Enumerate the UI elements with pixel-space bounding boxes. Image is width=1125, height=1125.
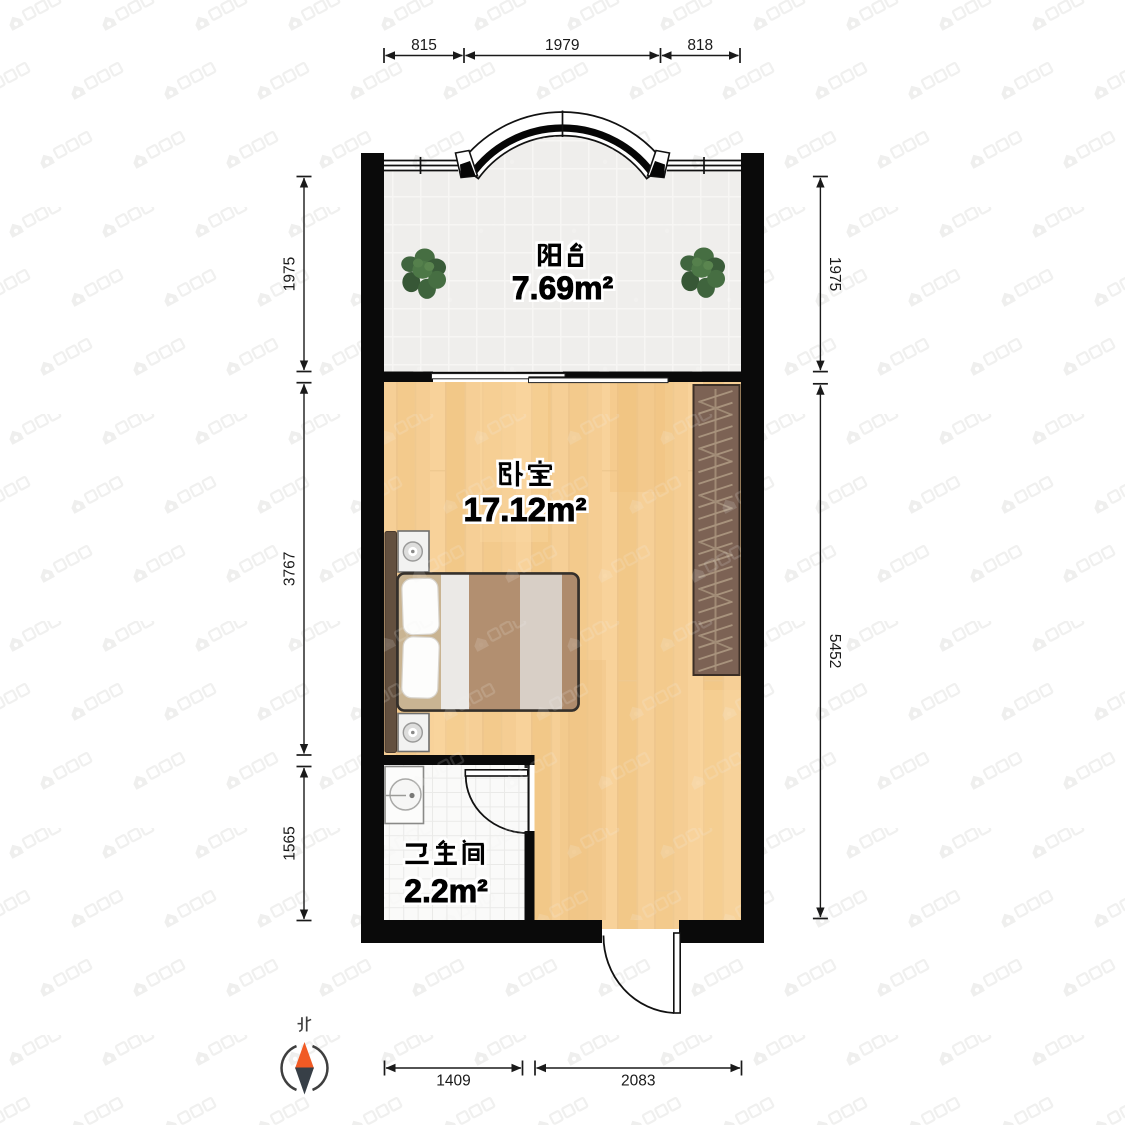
svg-text:2083: 2083 [621, 1073, 655, 1090]
svg-text:1565: 1565 [282, 826, 299, 860]
svg-text:17.12m²: 17.12m² [464, 491, 587, 528]
svg-text:5452: 5452 [826, 634, 843, 668]
svg-text:818: 818 [687, 37, 713, 54]
svg-text:1979: 1979 [545, 37, 579, 54]
svg-text:1975: 1975 [826, 257, 843, 291]
svg-text:2.2m²: 2.2m² [404, 873, 488, 909]
svg-text:815: 815 [411, 37, 437, 54]
svg-text:3767: 3767 [282, 552, 299, 586]
svg-text:7.69m²: 7.69m² [512, 270, 613, 306]
svg-text:1975: 1975 [282, 257, 299, 291]
svg-text:1409: 1409 [436, 1073, 470, 1090]
